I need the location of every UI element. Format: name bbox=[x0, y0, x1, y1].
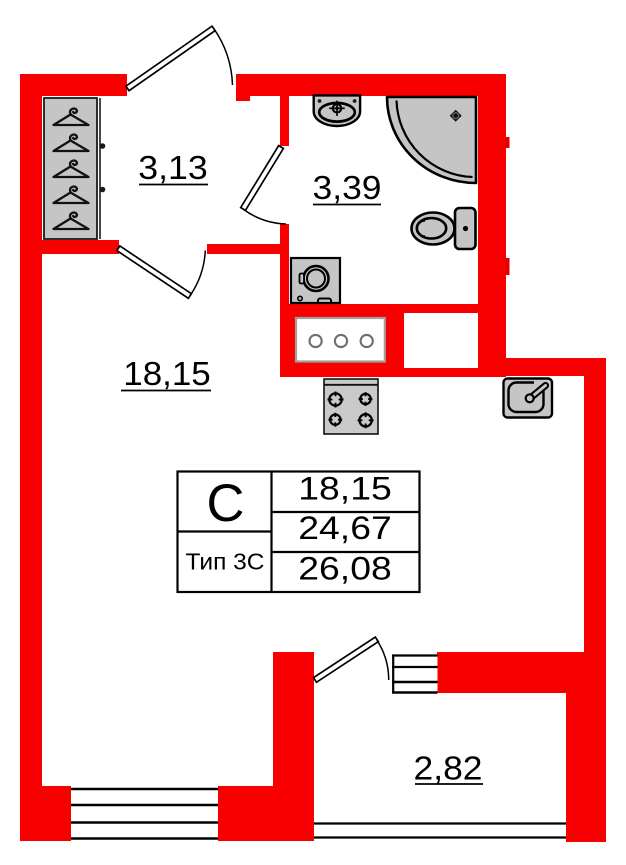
svg-text:3,39: 3,39 bbox=[313, 169, 382, 206]
svg-text:2,82: 2,82 bbox=[414, 749, 483, 786]
svg-text:3,13: 3,13 bbox=[138, 149, 208, 186]
svg-text:18,15: 18,15 bbox=[123, 355, 211, 392]
svg-text:С: С bbox=[207, 474, 245, 533]
svg-text:18,15: 18,15 bbox=[298, 470, 392, 506]
svg-text:26,08: 26,08 bbox=[298, 551, 392, 587]
svg-text:Тип 3С: Тип 3С bbox=[186, 549, 265, 575]
svg-text:24,67: 24,67 bbox=[298, 510, 392, 546]
